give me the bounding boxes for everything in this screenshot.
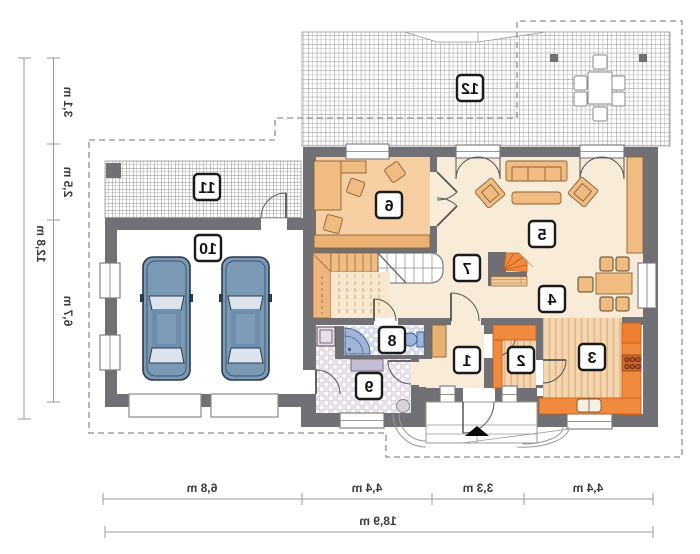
svg-text:9: 9 — [364, 379, 373, 396]
svg-text:11: 11 — [198, 180, 215, 197]
svg-text:18,9 m: 18,9 m — [359, 514, 396, 528]
svg-text:12,8 m: 12,8 m — [34, 225, 48, 262]
svg-text:4,4 m: 4,4 m — [573, 481, 604, 495]
svg-text:10: 10 — [199, 241, 217, 258]
svg-text:3: 3 — [587, 350, 596, 367]
svg-text:3,1 m: 3,1 m — [61, 87, 75, 118]
svg-text:8: 8 — [387, 333, 396, 350]
svg-text:5: 5 — [537, 227, 546, 244]
svg-text:4: 4 — [547, 292, 556, 309]
svg-text:6: 6 — [384, 198, 393, 215]
svg-text:3,3 m: 3,3 m — [463, 481, 494, 495]
svg-text:7: 7 — [462, 261, 471, 278]
svg-text:2,5 m: 2,5 m — [61, 167, 75, 198]
svg-text:2: 2 — [516, 353, 525, 370]
svg-text:12: 12 — [461, 81, 479, 98]
svg-text:6,8 m: 6,8 m — [187, 481, 218, 495]
svg-text:4,4 m: 4,4 m — [352, 481, 383, 495]
svg-text:6,7 m: 6,7 m — [61, 296, 75, 327]
svg-text:1: 1 — [462, 353, 471, 370]
